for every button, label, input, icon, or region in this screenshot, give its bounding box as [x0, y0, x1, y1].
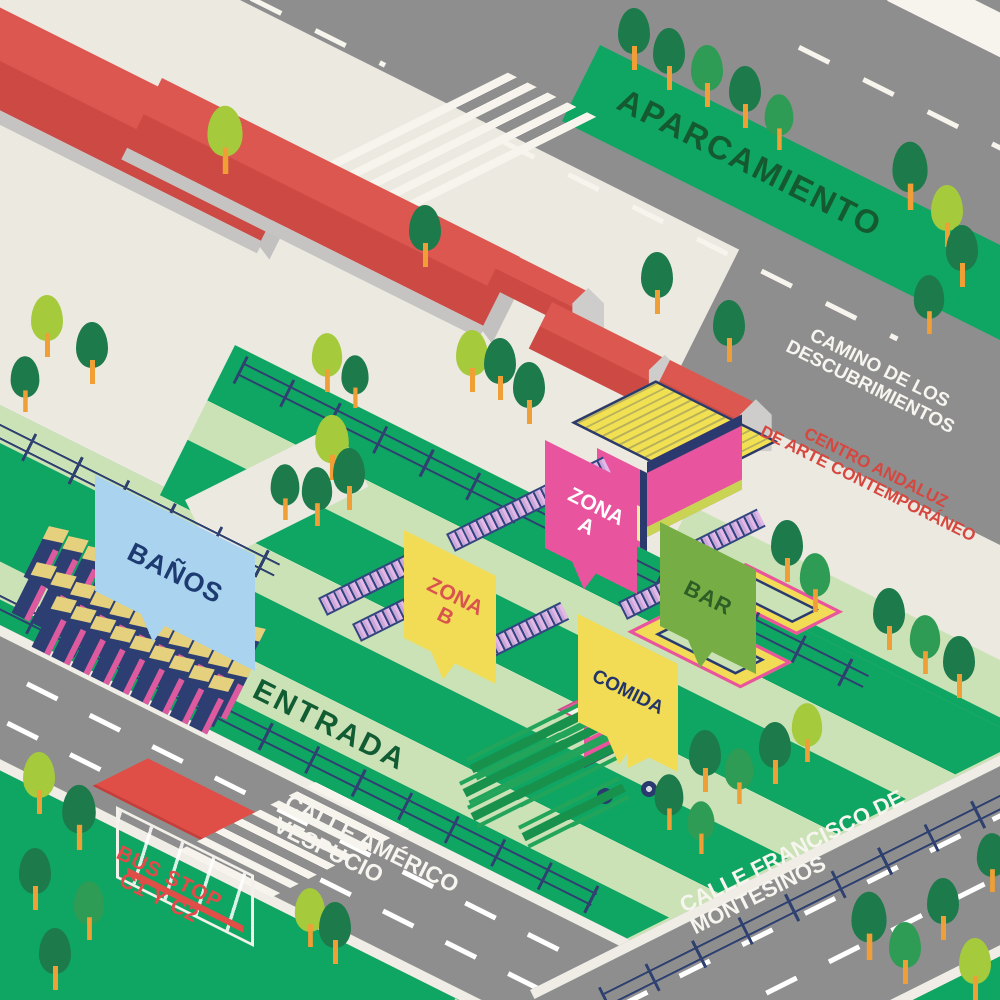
tree-icon — [799, 553, 831, 612]
tree-icon — [712, 300, 746, 362]
tree-icon — [73, 881, 105, 940]
sign-bar-label: BAR — [680, 576, 736, 619]
tree-icon — [976, 833, 1000, 892]
tree-icon — [18, 848, 52, 910]
tree-icon — [909, 615, 941, 674]
tree-icon — [22, 752, 56, 814]
tree-icon — [926, 878, 960, 940]
tree-icon — [38, 928, 72, 990]
tree-icon — [311, 333, 343, 392]
tree-icon — [945, 225, 979, 287]
tree-icon — [872, 588, 906, 650]
tree-icon — [942, 636, 976, 698]
tree-icon — [728, 66, 762, 128]
tree-icon — [206, 106, 243, 174]
tree-icon — [10, 356, 41, 412]
stage-post — [640, 469, 647, 551]
tree-icon — [617, 8, 651, 70]
tree-icon — [341, 355, 370, 408]
festival-site-map: BAÑOS ZONA A ZONA B BAR COMIDA APARCAMIE… — [0, 0, 1000, 1000]
tree-icon — [690, 45, 724, 107]
sign-banos-label: BAÑOS — [123, 537, 227, 608]
tree-icon — [30, 295, 64, 357]
tree-icon — [850, 892, 887, 960]
tree-icon — [724, 748, 755, 804]
tree-icon — [301, 467, 333, 526]
tree-icon — [688, 730, 722, 792]
sign-comida-label: COMIDA — [589, 667, 667, 719]
tree-icon — [758, 722, 792, 784]
tree-icon — [888, 922, 922, 984]
tree-icon — [891, 142, 928, 210]
tree-icon — [958, 938, 992, 1000]
tree-icon — [332, 448, 366, 510]
tree-icon — [687, 801, 716, 854]
tree-icon — [791, 703, 823, 762]
tree-icon — [640, 252, 674, 314]
tree-icon — [512, 362, 546, 424]
sign-zona-b-label: ZONA B — [406, 570, 494, 643]
tree-icon — [913, 275, 945, 334]
tree-icon — [408, 205, 442, 267]
tree-icon — [270, 464, 301, 520]
sign-zona-a-label: ZONA A — [547, 480, 635, 553]
tree-icon — [652, 28, 686, 90]
tree-icon — [764, 94, 795, 150]
tree-icon — [318, 902, 352, 964]
tree-icon — [75, 322, 109, 384]
tree-icon — [654, 774, 685, 830]
